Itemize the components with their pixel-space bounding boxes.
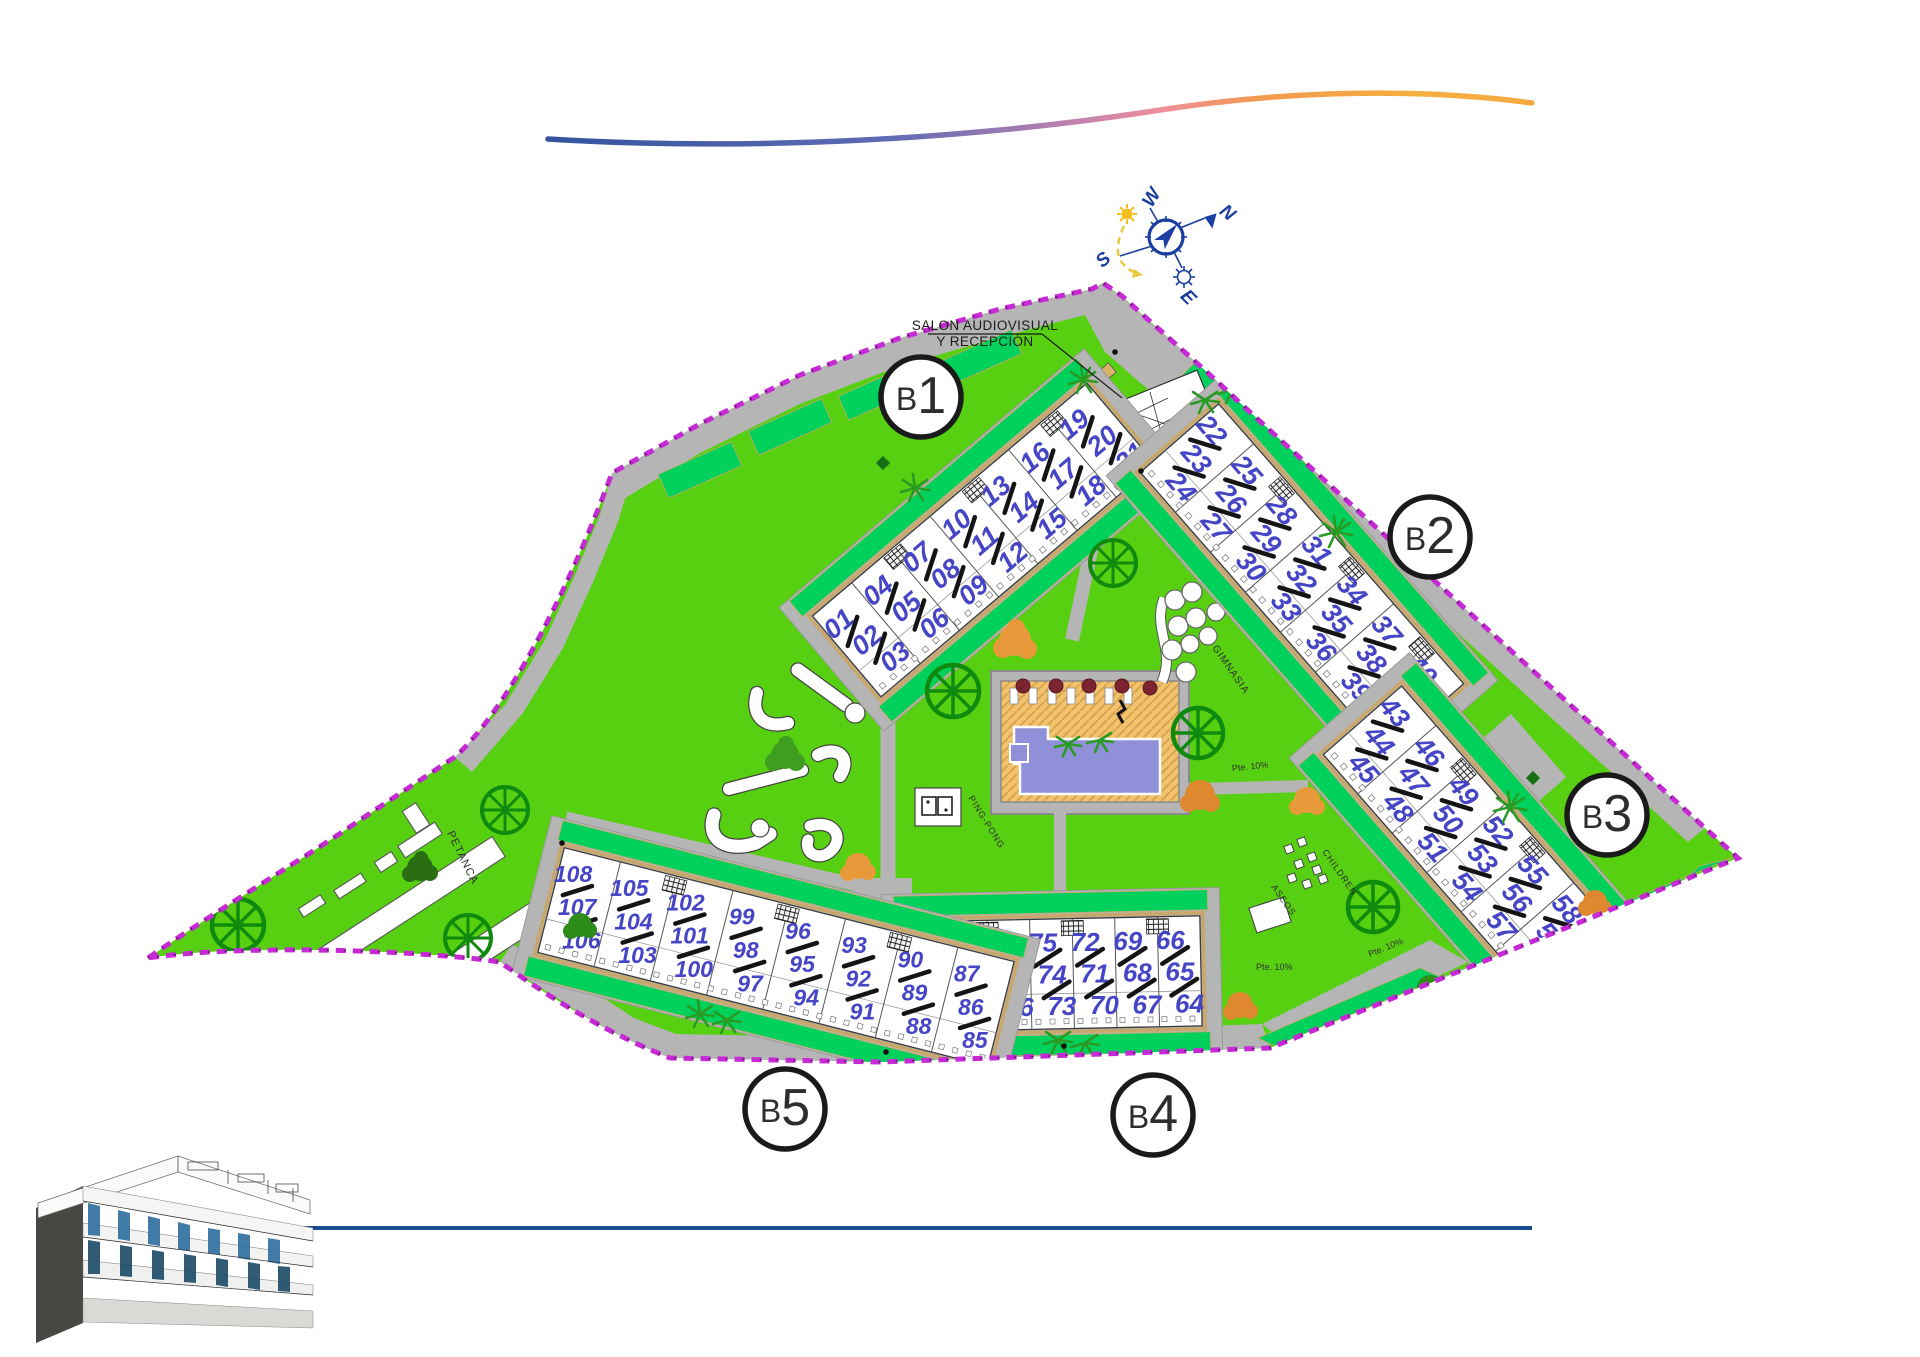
unit-parcel-number[interactable]: 90 <box>898 946 924 972</box>
reception-label-line1: SALON AUDIOVISUAL <box>912 318 1058 333</box>
pool-area <box>1001 679 1179 802</box>
unit-parcel-number[interactable]: 105 <box>610 875 650 901</box>
unit-parcel-number[interactable]: 60 <box>1515 944 1557 986</box>
top-swoosh-line <box>548 93 1532 144</box>
unit-parcel-number[interactable]: 85 <box>962 1027 989 1053</box>
unit-parcel-number[interactable]: 96 <box>785 918 811 944</box>
roof-ridge-mark <box>1564 975 1593 1005</box>
block-badge-b3[interactable]: B3 <box>1567 775 1647 855</box>
spa-pool <box>1010 744 1028 762</box>
compass-e-label: E <box>1176 286 1201 311</box>
unit-parcel-number[interactable]: 104 <box>614 908 653 934</box>
roof-ridge-mark <box>1580 947 1609 977</box>
unit-parcel-number[interactable]: 63 <box>1549 983 1591 1025</box>
unit-parcel-number[interactable]: 88 <box>906 1013 932 1039</box>
unit-parcel-number[interactable]: 103 <box>618 942 657 968</box>
unit-parcel-number[interactable]: 89 <box>902 980 928 1006</box>
compass-s-label: S <box>1092 248 1116 272</box>
unit-parcel-number[interactable]: 100 <box>675 956 714 982</box>
block-badge-b2[interactable]: B2 <box>1390 497 1470 577</box>
stairs-icon <box>1588 915 1614 941</box>
unit-parcel-number[interactable]: 87 <box>954 960 981 986</box>
pingpong-area <box>915 788 961 826</box>
unit-parcel-number[interactable]: 101 <box>670 923 708 949</box>
unit-parcel-number[interactable]: 97 <box>737 970 764 996</box>
unit-parcel-number[interactable]: 98 <box>733 937 759 963</box>
building-render-sketch <box>36 1156 313 1343</box>
unit-parcel-number[interactable]: 62 <box>1565 955 1607 997</box>
compass-sun-east-icon <box>1173 266 1195 288</box>
unit-parcel-number[interactable]: 102 <box>666 889 705 915</box>
unit-parcel-number[interactable]: 94 <box>793 984 819 1010</box>
unit-parcel-number[interactable]: 108 <box>554 861 593 887</box>
unit-parcel-number[interactable]: 99 <box>729 904 755 930</box>
unit-parcel-number[interactable]: 92 <box>846 965 872 991</box>
unit-parcel-number[interactable]: 93 <box>841 932 867 958</box>
compass-n-label: N <box>1215 200 1240 226</box>
unit-parcel-number[interactable]: 67 <box>1132 989 1162 1019</box>
block-badge-b4[interactable]: B4 <box>1113 1075 1193 1155</box>
site-plan-page: 0102030405060708091011121314151617181920… <box>0 0 1920 1357</box>
unit-parcel-number[interactable]: 86 <box>958 994 984 1020</box>
block-badge-b1[interactable]: B1 <box>881 357 961 437</box>
sun-path-icon <box>1117 204 1143 278</box>
reception-label-line2: Y RECEPCIÓN <box>936 334 1033 349</box>
pingpong-table-icon <box>922 797 936 815</box>
compass-w-label: W <box>1138 183 1166 211</box>
ramp-label-3: Pte. 10% <box>1256 962 1293 972</box>
unit-parcel-number[interactable]: 61 <box>1580 927 1622 969</box>
site-plan-drawing: 0102030405060708091011121314151617181920… <box>0 0 1920 1357</box>
block-badge-b5[interactable]: B5 <box>745 1069 825 1149</box>
unit-parcel-number[interactable]: 95 <box>789 951 816 977</box>
unit-parcel-number[interactable]: 91 <box>850 999 876 1025</box>
